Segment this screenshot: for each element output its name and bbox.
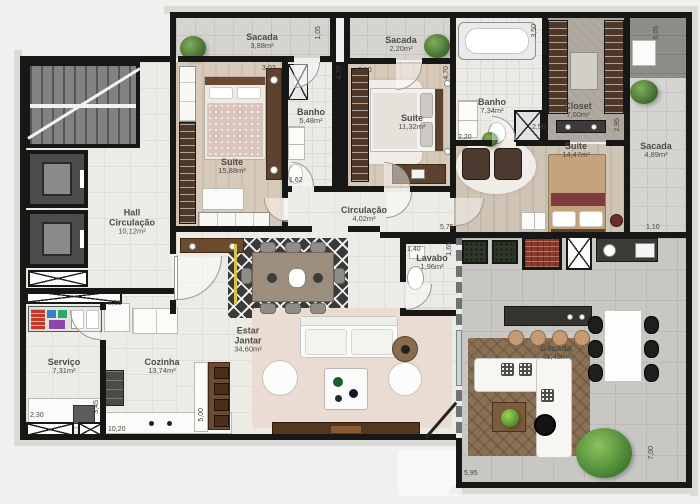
table-centerpiece	[289, 269, 305, 287]
floor-plan-image: Sacada 3,88m² Suite 15,88m² Banho 5,48m²…	[0, 0, 700, 504]
wall	[686, 12, 692, 488]
wall	[516, 140, 548, 146]
round-armchair	[388, 362, 422, 396]
closet-row-suite-1588	[198, 212, 270, 227]
room-area: 5,48m²	[297, 117, 325, 125]
balcony-bar	[504, 306, 592, 326]
balcony-chair	[644, 316, 659, 334]
patterned-pillow	[501, 363, 514, 376]
bar-stool-round	[574, 330, 590, 346]
patterned-pillow	[519, 363, 532, 376]
lamp	[270, 76, 278, 84]
bathtub-basin	[465, 28, 529, 54]
wall	[178, 56, 294, 62]
coffee-table	[324, 368, 368, 410]
wall	[400, 238, 406, 282]
laundry-item-green	[58, 310, 67, 318]
wall	[20, 56, 26, 440]
room-label-sacada-4145: Sacada 41,45m²	[540, 343, 572, 361]
decor-dark	[335, 395, 342, 402]
dim-sacada388-depth: 1,05	[315, 26, 322, 40]
grill-vent	[492, 240, 518, 264]
stairs	[26, 62, 140, 148]
balcony-chair	[588, 340, 603, 358]
grill-vent	[462, 240, 488, 264]
cooktop-burner	[149, 421, 154, 426]
dim-kitchen-height: 5,00	[198, 408, 205, 422]
dim-banho734-width: 2,20	[458, 134, 472, 141]
laundry-items-red	[31, 309, 45, 330]
dim-servico-height: 3,45	[93, 400, 100, 414]
lamp	[189, 243, 196, 250]
room-name: Hall	[109, 208, 155, 218]
kitchen-bar	[208, 362, 230, 430]
bush-sacada	[576, 428, 632, 478]
dim-banho548-width: 1,62	[289, 177, 303, 184]
room-area: 4,89m²	[640, 151, 672, 159]
bed-throw	[551, 193, 605, 206]
side-table	[392, 336, 418, 362]
wall	[282, 62, 288, 192]
room-name: Estar	[234, 326, 262, 336]
room-area: 4,02m²	[341, 215, 387, 223]
dining-chair	[310, 303, 326, 314]
wall	[330, 12, 336, 62]
bar-stool	[214, 383, 229, 395]
dim-lavabo-height: 1,65	[446, 242, 453, 256]
dining-chair	[260, 242, 276, 253]
sliding-door	[456, 330, 462, 386]
room-area: 14,47m²	[562, 151, 590, 159]
dim-suite1132-left: 4,70	[336, 66, 343, 80]
room-label-banho-734: Banho 7,34m²	[478, 97, 506, 115]
double-sink-banho-734	[458, 100, 478, 138]
wall	[100, 340, 106, 434]
room-area: 7,31m²	[48, 367, 81, 375]
media-unit	[520, 212, 546, 230]
room-area: 10,12m²	[109, 228, 155, 236]
dining-chair	[285, 303, 301, 314]
pouf	[610, 214, 623, 227]
dim-suite1588-width: 3,02	[262, 65, 276, 72]
room-label-banho-548: Banho 5,48m²	[297, 107, 325, 125]
dim-sacada4145-height: 7,00	[648, 446, 655, 460]
sofa-cushion	[351, 329, 393, 355]
decor	[567, 314, 573, 320]
room-area: 2,20m²	[385, 45, 417, 53]
bed-headboard	[205, 77, 265, 85]
wall	[20, 56, 172, 62]
dim-sacada489-height: 6,05	[653, 26, 660, 40]
desk-laptop	[411, 169, 425, 179]
wall	[606, 140, 626, 146]
duct-1	[28, 270, 88, 287]
wall	[456, 482, 692, 488]
lamp	[270, 166, 278, 174]
floor-plan: Sacada 3,88m² Suite 15,88m² Banho 5,48m²…	[0, 0, 700, 504]
dim-lavabo-width: 1,40	[407, 246, 421, 253]
wardrobe-suite1588-lower	[179, 122, 196, 224]
wardrobe-suite1588-upper	[179, 66, 196, 122]
room-label-estar-jantar: Estar Jantar 34,60m²	[234, 326, 262, 355]
elevator-1	[26, 150, 88, 208]
laundry-item-blue	[47, 310, 56, 318]
bed-suite-1447	[548, 154, 606, 234]
room-label-suite-1132: Suite 11,32m²	[399, 113, 426, 131]
double-sink-banho-548	[288, 126, 305, 160]
dining-table	[252, 252, 334, 302]
room-label-sacada-489: Sacada 4,89m²	[640, 141, 672, 159]
dining-chair	[241, 268, 252, 284]
patterned-pillow	[541, 389, 554, 402]
bar-stool	[214, 399, 229, 411]
room-area: 7,34m²	[478, 107, 506, 115]
sofa-cushion	[305, 329, 347, 355]
wall	[344, 16, 350, 62]
wall	[400, 310, 462, 316]
bed-cover	[207, 103, 263, 157]
sideboard-decor	[331, 426, 361, 433]
room-label-servico: Serviço 7,31m²	[48, 357, 81, 375]
bench-sacada-489	[632, 40, 656, 66]
closet-wardrobe-right	[604, 20, 624, 114]
room-area: 15,88m²	[218, 167, 246, 175]
wall	[456, 438, 462, 488]
pillow	[209, 87, 233, 99]
decor	[565, 124, 571, 130]
dim-suite1132-right: 4,70	[443, 66, 450, 80]
elevator-2	[26, 210, 88, 268]
dining-chair	[285, 242, 301, 253]
decor-dark	[349, 389, 358, 398]
wall-entry-upper	[170, 12, 176, 254]
decor-green	[333, 377, 343, 387]
room-area: 1,96m²	[416, 263, 448, 271]
bathtub	[458, 22, 536, 60]
wall	[410, 186, 454, 192]
wall	[20, 434, 462, 440]
room-area: 13,74m²	[145, 367, 180, 375]
balcony-chair	[644, 340, 659, 358]
wall	[172, 226, 282, 232]
plant-sacada-489	[630, 80, 658, 104]
cooktop-burner	[167, 421, 172, 426]
room-label-cozinha: Cozinha 13,74m²	[145, 357, 180, 375]
elevator-2-door	[80, 230, 84, 248]
balcony-chair	[588, 364, 603, 382]
room-area: 41,45m²	[540, 353, 572, 361]
elevator-2-cab	[42, 222, 72, 256]
decor	[579, 314, 585, 320]
balcony-table	[604, 310, 642, 382]
decor	[591, 124, 597, 130]
bed-headboard	[435, 89, 443, 151]
room-label-sacada-388: Sacada 3,88m²	[246, 32, 278, 50]
dining-chair	[334, 268, 345, 284]
pillow	[237, 87, 261, 99]
desk-suite-1588	[202, 188, 244, 210]
dining-chair	[310, 242, 326, 253]
room-label-lavabo: Lavabo 1,96m²	[416, 253, 448, 271]
wall-entry-lower	[170, 300, 176, 314]
wall	[26, 288, 178, 294]
room-area: 34,60m²	[234, 346, 262, 354]
round-armchair	[262, 360, 298, 396]
closet-island	[570, 52, 598, 90]
elevator-1-door	[80, 170, 84, 188]
wall-shaft	[332, 62, 348, 192]
balcony-cabinet	[635, 243, 655, 258]
dim-hall-wall: 2,15	[108, 300, 122, 307]
sofa	[300, 316, 398, 358]
balcony-coffee-table	[492, 402, 526, 432]
glass-wall	[456, 238, 462, 330]
wall	[348, 186, 384, 192]
room-label-hall: Hall Circulação 10,12m²	[109, 208, 155, 237]
room-area: 7,00m²	[564, 111, 592, 119]
churrasqueira	[522, 236, 562, 270]
balcony-sink	[603, 244, 616, 257]
dim-sacada489-bottom: 1,10	[646, 224, 660, 231]
glass-wall	[456, 386, 462, 438]
pillow	[579, 211, 603, 227]
room-area: 3,88m²	[246, 42, 278, 50]
room-label-suite-1447: Suite 14,47m²	[562, 141, 590, 159]
plant-sacada-220	[424, 34, 450, 58]
wardrobe-suite-1132	[351, 68, 369, 182]
table-decor	[313, 273, 323, 283]
room-area: 11,32m²	[399, 123, 426, 131]
dim-apartment-width: 10,20	[108, 426, 126, 433]
oven-tower	[104, 370, 124, 406]
dim-closet-left: 2,50	[532, 124, 546, 131]
wall	[100, 302, 106, 310]
dim-closet-right: 2,95	[614, 118, 621, 132]
armchair	[462, 148, 490, 180]
room-label-sacada-220: Sacada 2,20m²	[385, 35, 417, 53]
sofa-back	[301, 317, 397, 326]
wall	[344, 58, 396, 64]
room-label-closet: Closet 7,00m²	[564, 101, 592, 119]
wall	[348, 226, 380, 232]
black-side-table	[534, 414, 556, 436]
l-sofa-vertical	[536, 358, 572, 458]
pillow	[552, 211, 576, 227]
watermark	[398, 450, 462, 496]
room-label-circulacao: Circulação 4,02m²	[341, 205, 387, 223]
bar-stool-round	[508, 330, 524, 346]
table-decor	[267, 273, 277, 283]
dim-circulacao-width: 5,75	[440, 224, 454, 231]
plant-coffee-table	[501, 409, 519, 427]
service-elevator	[566, 236, 592, 270]
bed-suite-1588	[204, 76, 266, 160]
entry-door-leaf	[174, 256, 178, 300]
bar-stool	[214, 367, 229, 379]
room-label-suite-1588: Suite 15,88m²	[218, 157, 246, 175]
balcony-counter	[596, 238, 658, 262]
bar-stool	[214, 415, 229, 427]
wall	[450, 12, 456, 198]
balcony-chair	[644, 364, 659, 382]
dim-sacada4145-width: 5,95	[464, 470, 478, 477]
floor-lamp	[234, 244, 237, 304]
wall	[170, 12, 692, 18]
dim-servico-width: 2,30	[30, 412, 44, 419]
dim-banho734-height: 3,50	[531, 24, 538, 38]
elevator-1-cab	[42, 162, 72, 196]
fridge	[104, 303, 130, 332]
decor-dark	[401, 345, 410, 354]
laundry-item-purple	[49, 320, 65, 329]
wall	[624, 12, 630, 238]
armchair	[494, 148, 522, 180]
dim-suite1132-width: 3,10	[358, 67, 372, 74]
balcony-chair	[588, 316, 603, 334]
dining-chair	[260, 303, 276, 314]
nightstand-column	[266, 68, 282, 180]
closet-console	[556, 120, 606, 133]
